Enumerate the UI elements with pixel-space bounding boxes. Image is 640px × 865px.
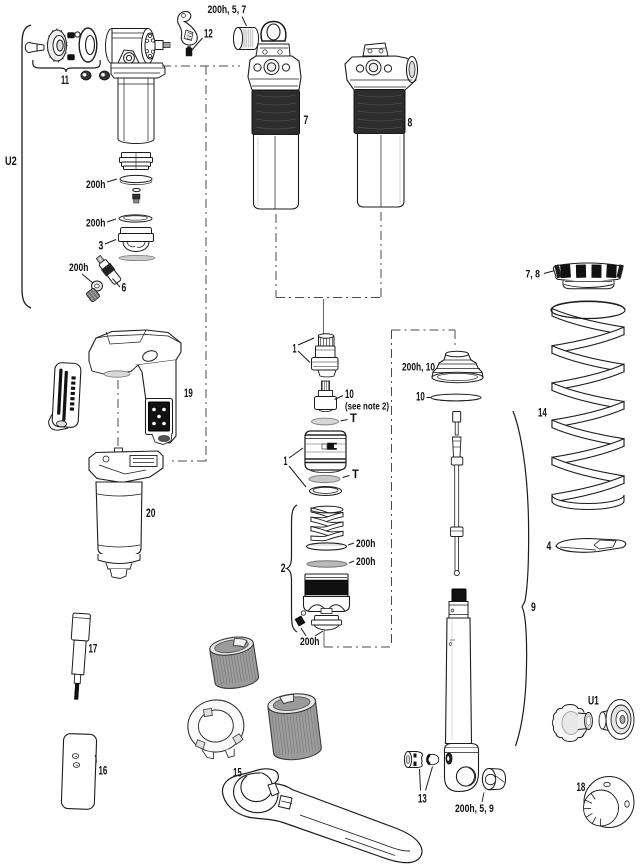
svg-text:(see note 2): (see note 2)	[345, 402, 389, 413]
svg-text:U1: U1	[588, 694, 599, 708]
svg-text:200h: 200h	[356, 556, 376, 568]
svg-text:200h: 200h	[356, 538, 376, 550]
svg-text:T: T	[352, 469, 359, 481]
svg-text:6: 6	[122, 283, 127, 295]
svg-text:20: 20	[146, 508, 156, 520]
svg-text:16: 16	[99, 766, 108, 778]
svg-text:10: 10	[416, 392, 425, 404]
svg-text:T: T	[350, 413, 357, 425]
svg-text:18: 18	[577, 782, 586, 794]
svg-text:13: 13	[418, 794, 427, 806]
svg-text:11: 11	[61, 75, 69, 87]
svg-text:3: 3	[99, 241, 104, 253]
svg-text:200h, 5, 7: 200h, 5, 7	[208, 4, 247, 16]
svg-text:17: 17	[89, 644, 98, 656]
svg-text:200h, 10: 200h, 10	[402, 362, 435, 374]
svg-text:10: 10	[345, 389, 354, 401]
svg-text:14: 14	[538, 408, 547, 420]
svg-text:200h: 200h	[69, 262, 89, 274]
svg-text:7, 8: 7, 8	[526, 269, 540, 281]
svg-text:200h: 200h	[300, 636, 320, 648]
svg-text:U2: U2	[5, 154, 17, 168]
svg-text:1: 1	[293, 344, 297, 356]
svg-text:200h: 200h	[86, 218, 106, 230]
svg-text:4: 4	[547, 541, 552, 553]
svg-text:8: 8	[408, 118, 413, 130]
svg-text:7: 7	[304, 115, 309, 127]
svg-text:12: 12	[204, 29, 213, 41]
svg-text:1: 1	[284, 456, 288, 468]
svg-text:9: 9	[531, 602, 536, 614]
svg-text:15: 15	[233, 768, 242, 780]
svg-text:200h: 200h	[86, 179, 106, 191]
svg-text:19: 19	[184, 388, 193, 400]
svg-text:2: 2	[281, 563, 286, 575]
svg-text:200h, 5, 9: 200h, 5, 9	[455, 803, 494, 815]
